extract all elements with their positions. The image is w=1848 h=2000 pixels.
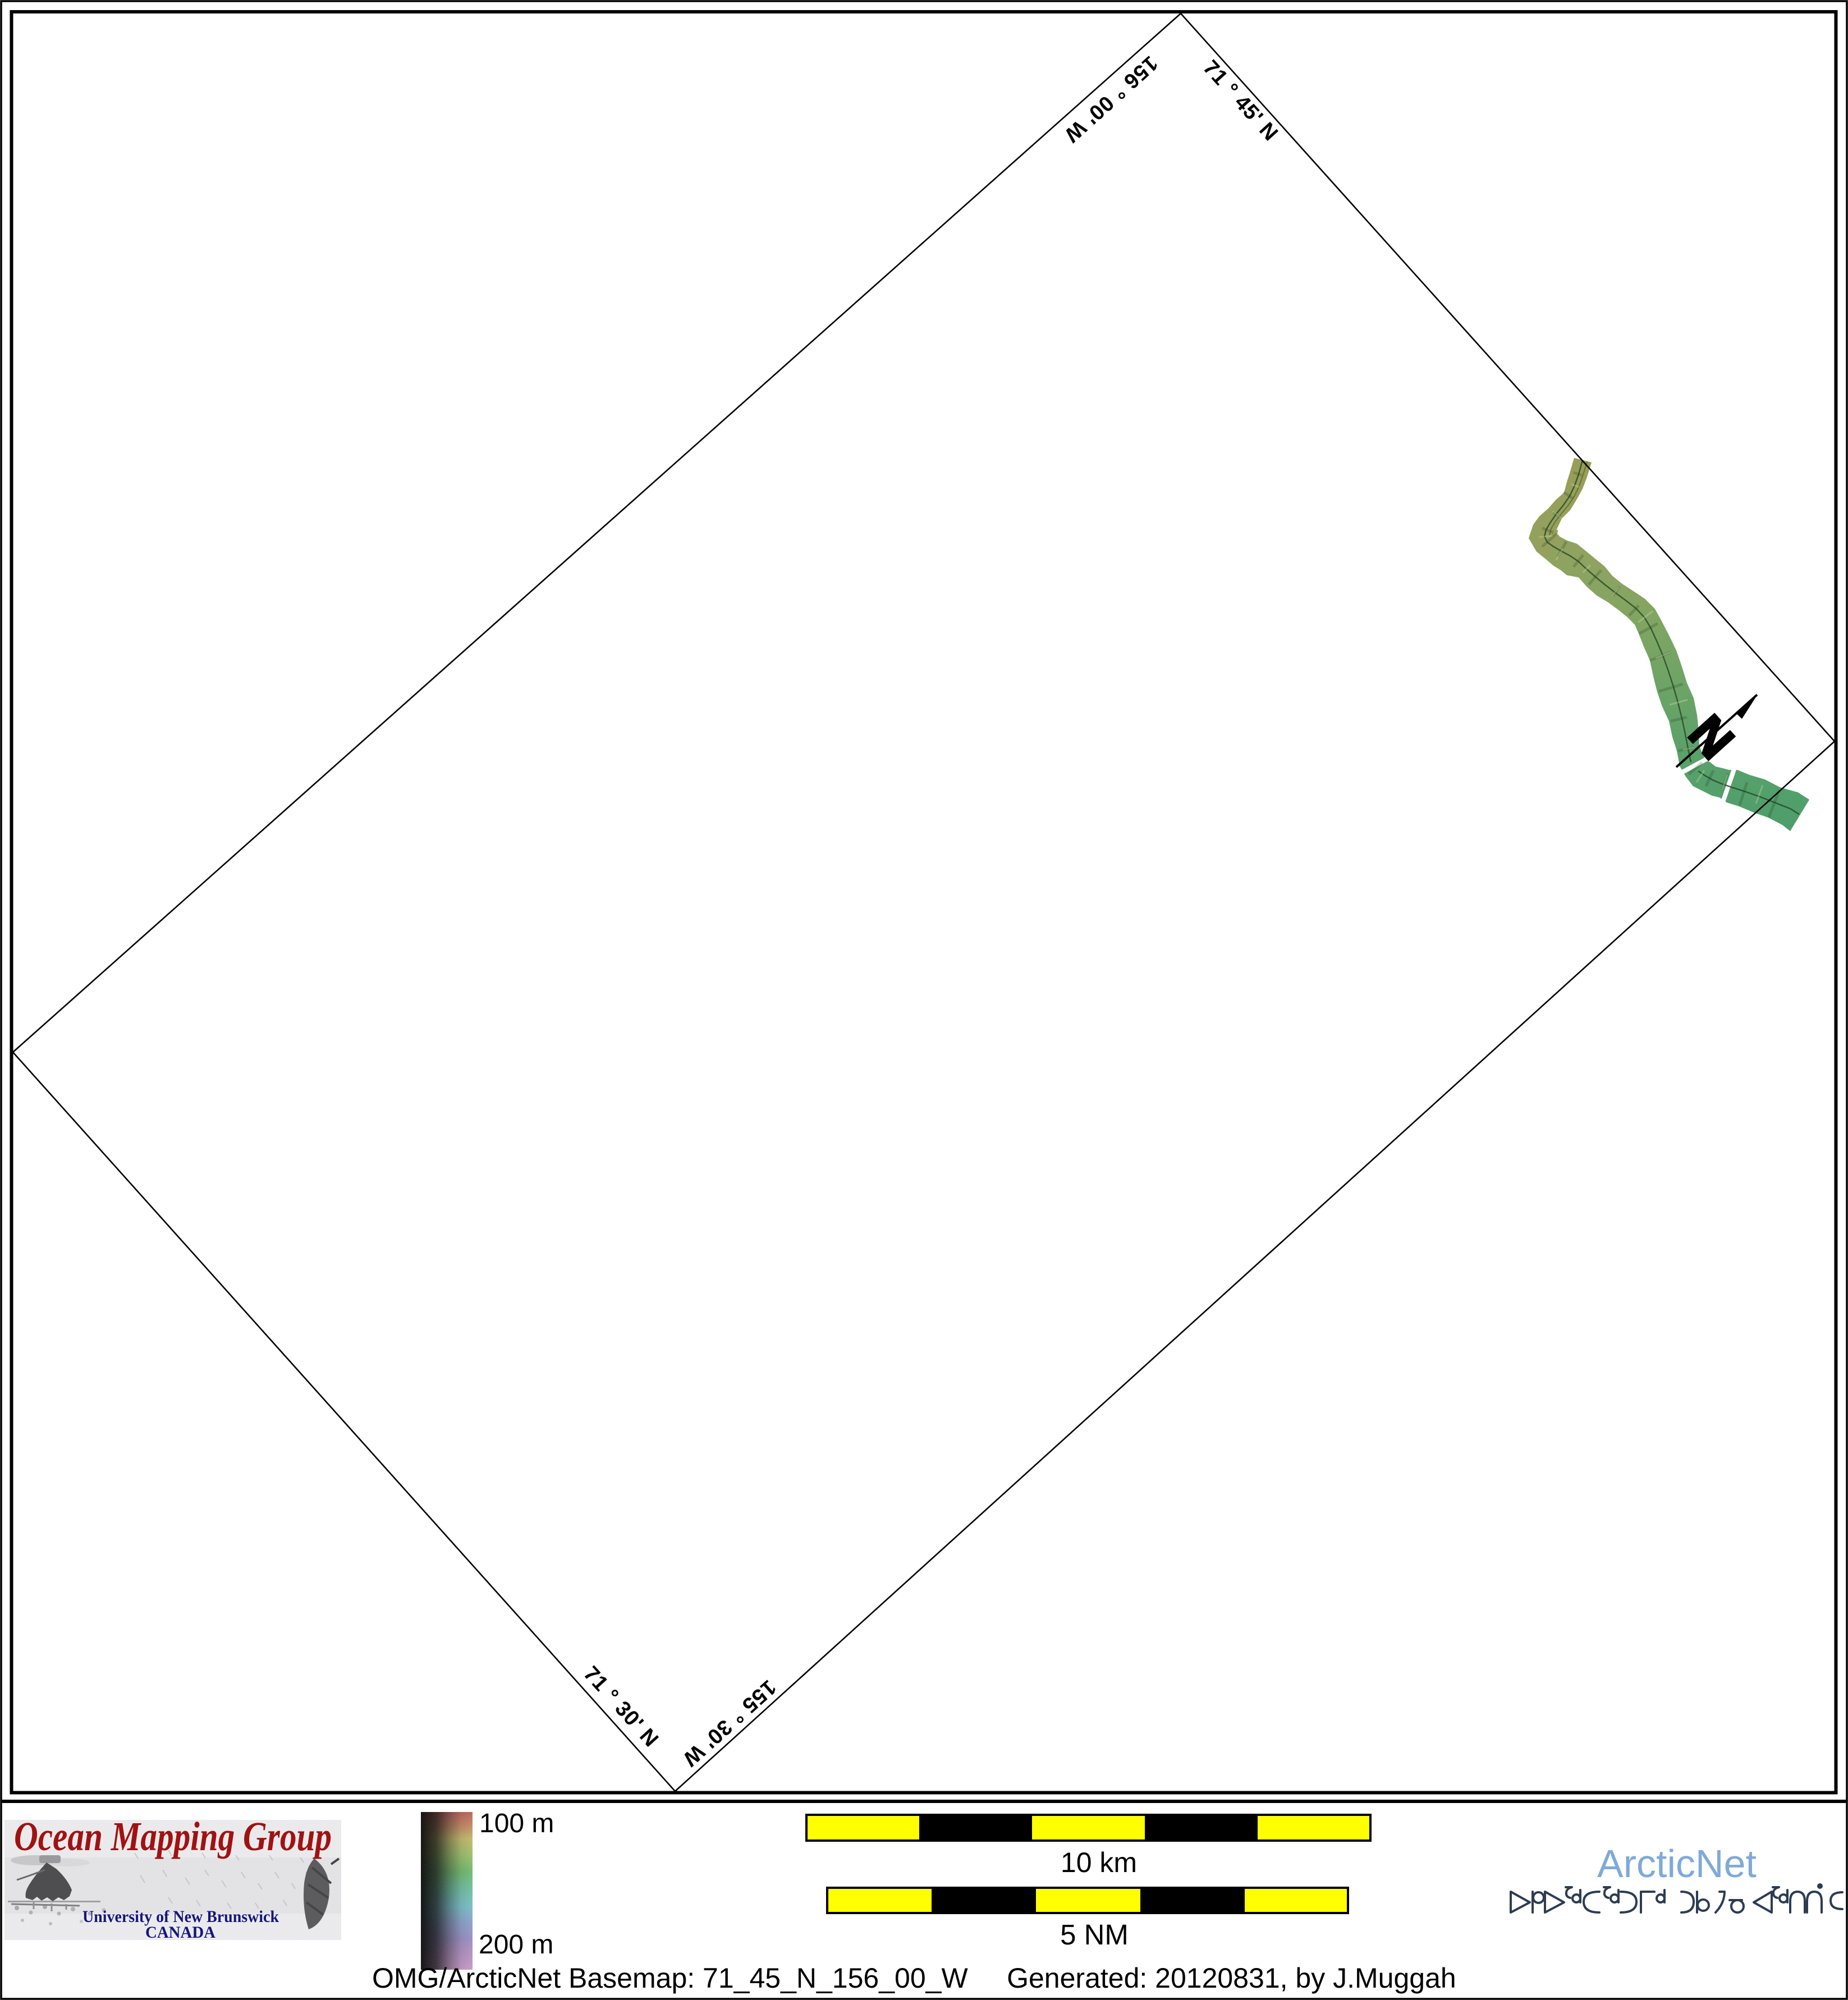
svg-text:100 m: 100 m: [479, 1809, 554, 1838]
svg-text:Ocean Mapping Group: Ocean Mapping Group: [14, 1814, 332, 1859]
svg-text:10 km: 10 km: [1061, 1847, 1137, 1878]
svg-text:200 m: 200 m: [479, 1930, 553, 1960]
svg-text:OMG/ArcticNet Basemap: 71_45_N: OMG/ArcticNet Basemap: 71_45_N_156_00_W …: [372, 1962, 1456, 1994]
svg-text:5 NM: 5 NM: [1060, 1919, 1129, 1951]
svg-text:ArcticNet: ArcticNet: [1597, 1842, 1757, 1886]
svg-text:CANADA: CANADA: [145, 1923, 215, 1942]
